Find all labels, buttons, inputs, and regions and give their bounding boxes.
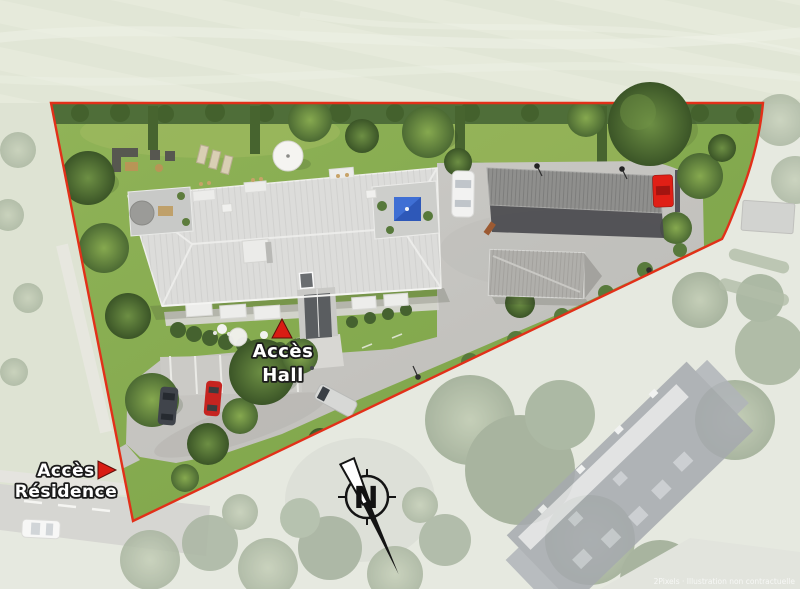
bush — [382, 308, 394, 320]
dark-gray-car — [157, 386, 178, 425]
rooftop-terrace-gray — [128, 187, 193, 236]
bush — [170, 322, 186, 338]
tree — [187, 423, 229, 465]
balcony — [193, 189, 216, 201]
car-glass — [455, 180, 471, 188]
tree — [567, 99, 605, 137]
car-glass — [208, 387, 218, 394]
balcony — [352, 296, 377, 310]
car-body — [452, 171, 475, 217]
armchair — [165, 151, 175, 161]
chair — [336, 174, 340, 178]
bush — [673, 243, 687, 257]
balcony — [254, 305, 281, 320]
residence-access-label-line2: Résidence — [15, 482, 117, 502]
tree — [79, 223, 129, 273]
planter — [423, 211, 433, 221]
tree — [660, 212, 692, 244]
patio-chair — [213, 331, 217, 335]
balcony — [244, 181, 267, 193]
lamp-head — [534, 163, 540, 169]
planter — [386, 226, 394, 234]
bush — [110, 102, 130, 122]
patio-table — [217, 324, 227, 334]
bush — [205, 102, 225, 122]
white-car — [452, 171, 475, 217]
car-glass — [455, 200, 471, 207]
parasol-pole — [405, 207, 409, 211]
tree — [288, 98, 332, 142]
bush — [156, 105, 174, 123]
tree-highlight — [620, 94, 656, 130]
lounge-table — [125, 162, 138, 171]
compass-north-letter: N — [353, 481, 378, 516]
tree — [402, 106, 454, 158]
parasol-pole — [286, 154, 290, 158]
patio-table — [260, 331, 268, 339]
car-glass — [207, 405, 217, 412]
residence-access-label-line1: Accès — [37, 461, 94, 481]
lamp-head — [415, 374, 421, 380]
chair — [199, 182, 203, 186]
car-glass — [163, 393, 176, 401]
bush — [71, 104, 89, 122]
terrace-table — [158, 206, 173, 216]
planter — [182, 218, 190, 226]
bush — [386, 104, 404, 122]
site-plan-image: Accès Hall Accès Résidence N 2Pixels · I… — [0, 0, 800, 589]
chair — [207, 181, 211, 185]
bush — [364, 312, 376, 324]
bush — [521, 104, 539, 122]
chimney — [366, 190, 377, 199]
tree — [708, 134, 736, 162]
gray-parasol — [130, 201, 154, 225]
skylight — [299, 272, 313, 288]
red-car-parking — [203, 380, 222, 416]
chimney — [222, 204, 233, 213]
hedge-divider — [250, 106, 260, 154]
balcony — [220, 304, 247, 319]
armchair — [150, 150, 160, 160]
tree — [345, 119, 379, 153]
site-plan-canvas: Accès Hall Accès Résidence N 2Pixels · I… — [0, 0, 800, 589]
patio-parasol — [229, 328, 247, 346]
tree — [105, 293, 151, 339]
chair — [251, 178, 255, 182]
hall-access-label-line1: Accès — [253, 341, 314, 362]
red-car-carport — [652, 175, 673, 208]
hedge-divider — [148, 106, 158, 150]
chair — [345, 173, 349, 177]
bush — [329, 101, 351, 123]
tree — [171, 464, 199, 492]
bollard — [310, 366, 314, 370]
bush — [186, 326, 202, 342]
balcony — [329, 167, 354, 179]
rooftop-terrace-blue — [372, 181, 439, 239]
side-table — [155, 164, 163, 172]
lamp-head — [619, 166, 625, 172]
planter — [377, 201, 387, 211]
watermark-text: 2Pixels · Illustration non contractuelle — [654, 577, 796, 586]
bush — [346, 316, 358, 328]
chair — [259, 177, 263, 181]
hall-access-label-line2: Hall — [262, 365, 304, 386]
car-glass — [161, 413, 173, 420]
planter — [177, 192, 185, 200]
car-glass — [656, 186, 670, 195]
car-body — [203, 380, 222, 416]
balcony — [384, 293, 409, 307]
bush — [736, 106, 754, 124]
lounge-sofa — [112, 148, 121, 172]
